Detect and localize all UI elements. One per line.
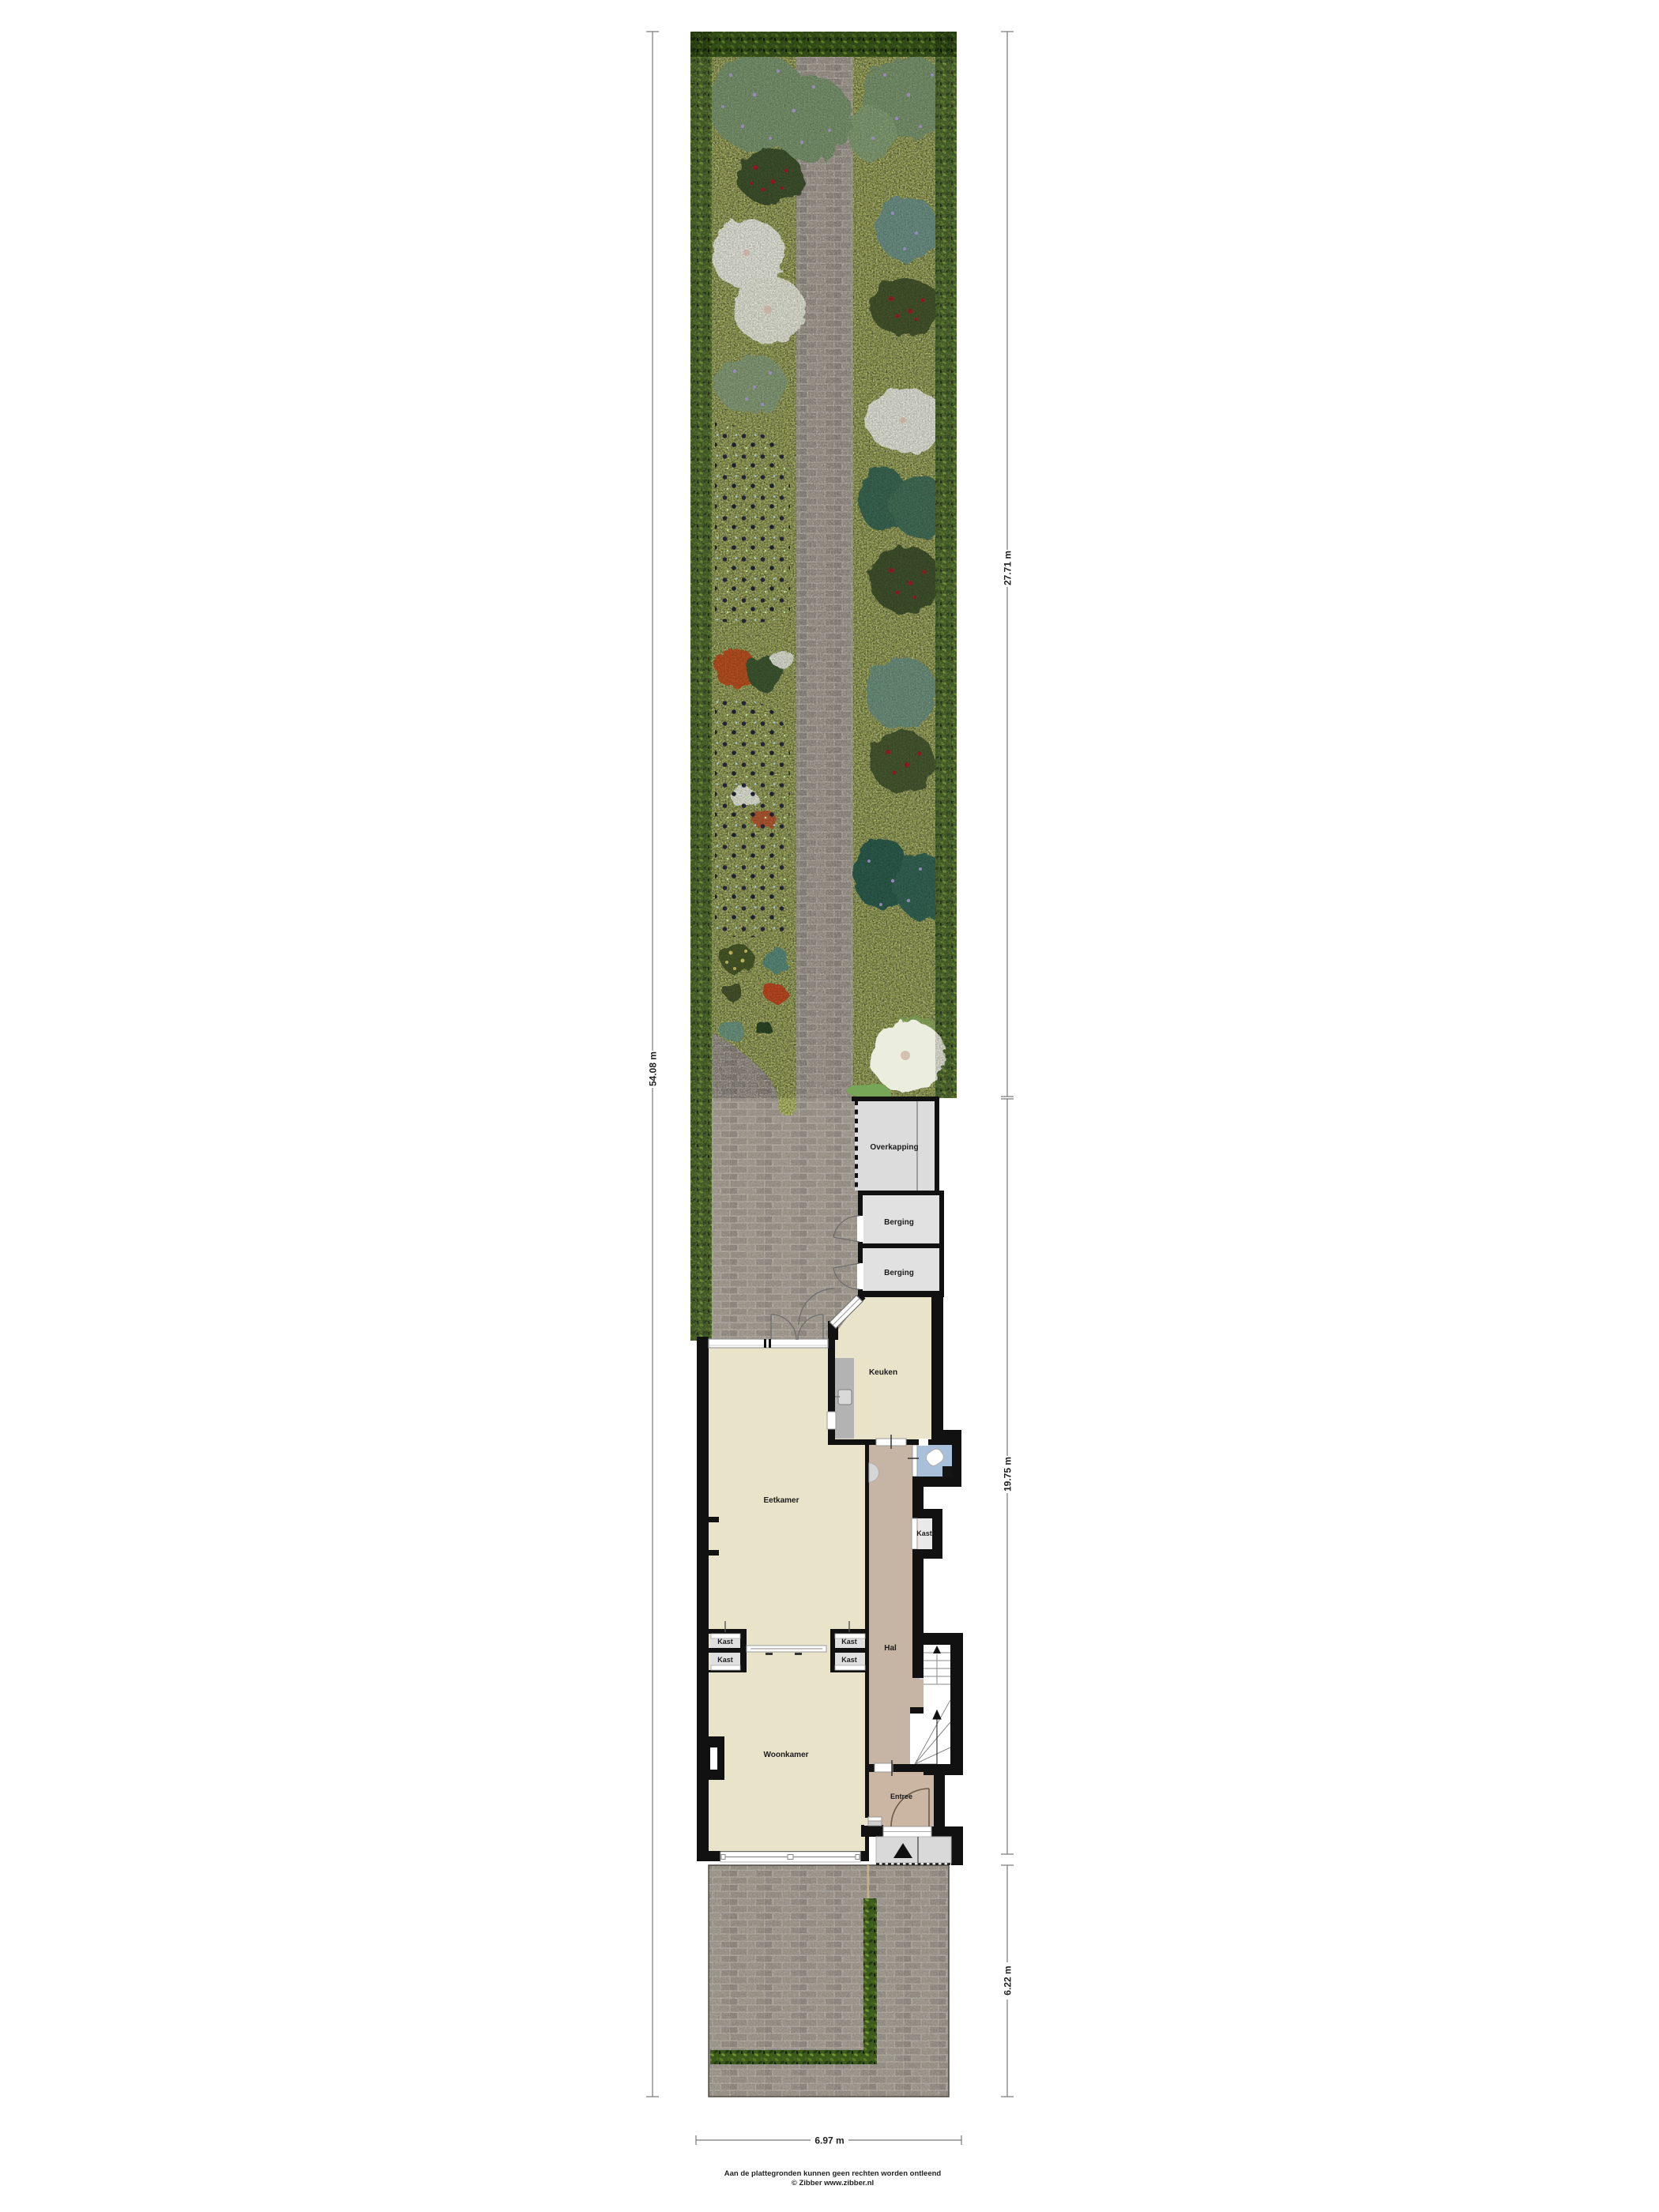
svg-text:27.71 m: 27.71 m bbox=[1003, 551, 1014, 585]
svg-text:Aan de plattegronden kunnen ge: Aan de plattegronden kunnen geen rechten… bbox=[724, 2169, 942, 2178]
svg-text:Kast: Kast bbox=[717, 1638, 733, 1646]
svg-text:Eetkamer: Eetkamer bbox=[763, 1496, 799, 1505]
svg-text:54.08 m: 54.08 m bbox=[648, 1051, 659, 1086]
svg-text:Woonkamer: Woonkamer bbox=[763, 1751, 808, 1759]
svg-text:Kast: Kast bbox=[841, 1656, 857, 1664]
svg-text:Kast: Kast bbox=[717, 1656, 733, 1664]
svg-text:Berging: Berging bbox=[884, 1269, 914, 1277]
svg-text:6.22 m: 6.22 m bbox=[1003, 1966, 1014, 1995]
svg-text:© Zibber www.zibber.nl: © Zibber www.zibber.nl bbox=[792, 2179, 874, 2188]
svg-text:6.97 m: 6.97 m bbox=[814, 2135, 844, 2146]
svg-text:Kast: Kast bbox=[841, 1638, 857, 1646]
svg-text:Hal: Hal bbox=[884, 1644, 897, 1653]
svg-text:Kast: Kast bbox=[916, 1529, 932, 1537]
svg-text:Entree: Entree bbox=[890, 1793, 912, 1800]
svg-text:Keuken: Keuken bbox=[869, 1368, 897, 1377]
svg-text:19.75 m: 19.75 m bbox=[1003, 1457, 1014, 1492]
svg-text:Overkapping: Overkapping bbox=[870, 1143, 918, 1152]
svg-text:Berging: Berging bbox=[884, 1218, 914, 1227]
